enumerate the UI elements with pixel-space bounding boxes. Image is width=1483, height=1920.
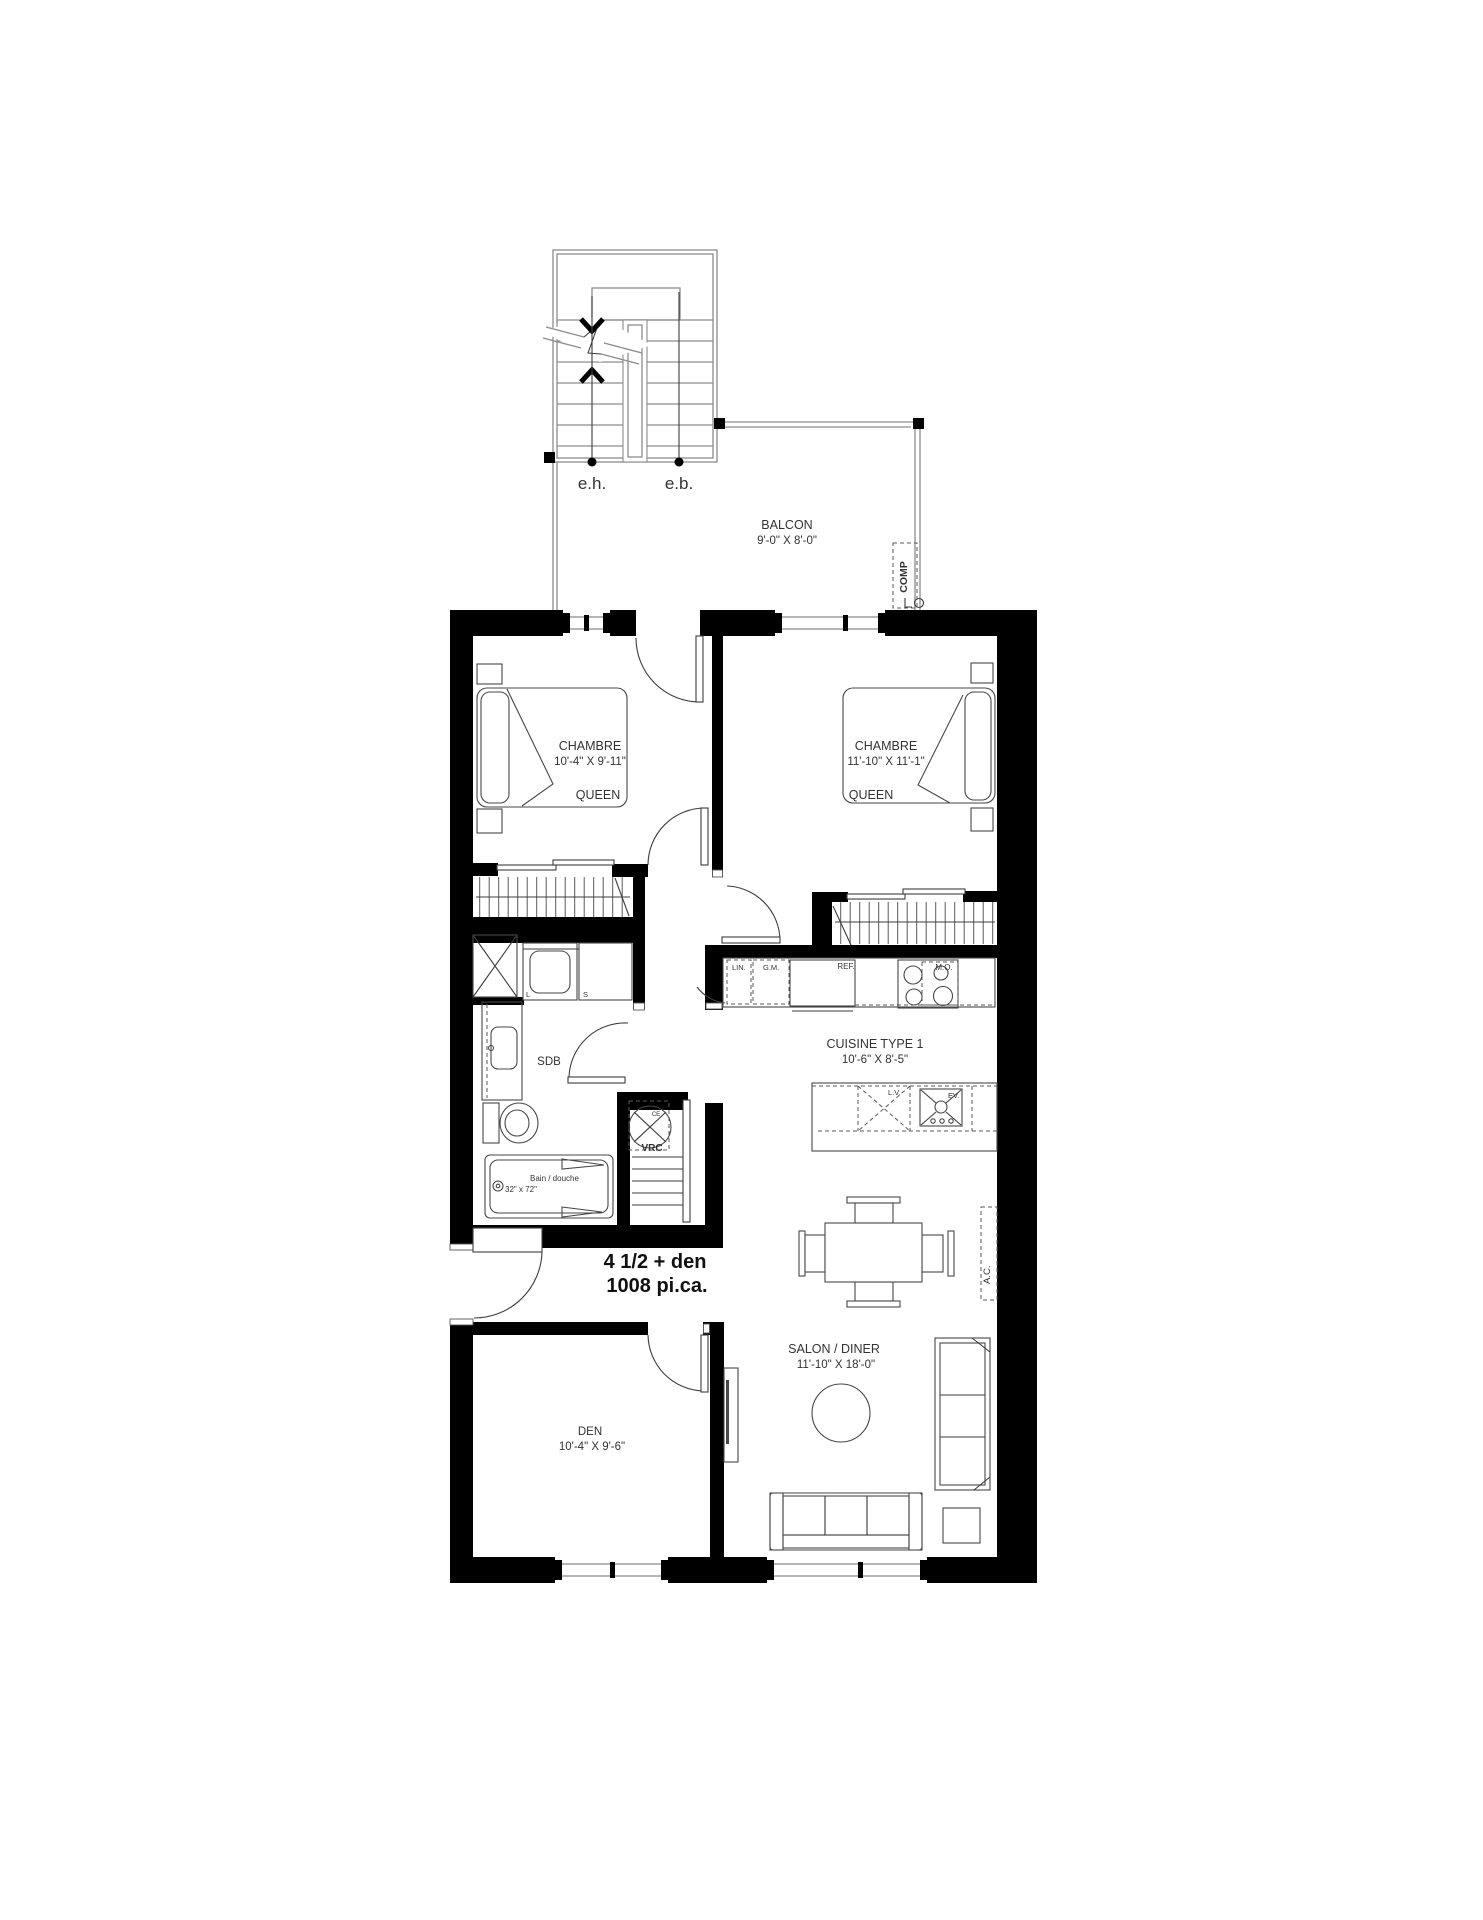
linen-label: LIN. — [732, 963, 746, 972]
chair-back — [847, 1197, 900, 1203]
ac-label: A.C. — [982, 1266, 993, 1284]
vrc-label: VRC — [641, 1143, 662, 1154]
bathroom-door — [568, 1023, 628, 1083]
den-window — [555, 1557, 668, 1583]
den: DEN 10'-4" X 9'-6" — [559, 1426, 625, 1453]
sink-label: EV. — [948, 1091, 959, 1100]
dining-set — [799, 1197, 954, 1307]
round-rug — [812, 1384, 870, 1442]
bedroom1-window — [563, 610, 610, 636]
chair-back — [847, 1301, 900, 1307]
stairs-up-label: e.h. — [578, 474, 606, 493]
bathroom-label: SDB — [537, 1056, 561, 1068]
vrc-shelves — [632, 1157, 683, 1205]
kitchen-north-wall — [713, 945, 997, 958]
vrc-closet: CE VRC — [629, 1101, 683, 1205]
dishwasher-label: L.V. — [888, 1088, 901, 1097]
vanity-sink — [482, 1002, 522, 1100]
downspout-icon — [915, 599, 924, 608]
chair-back — [799, 1231, 805, 1276]
closet-slider — [497, 865, 556, 870]
utility-chase — [473, 935, 517, 997]
microwave-label: M.O. — [935, 963, 952, 972]
fridge-label: REF. — [837, 962, 854, 971]
floor-plan-drawing: e.h. e.b. BALCON 9'-0" X 8'-0" COMP — [0, 0, 1483, 1920]
bedroom2: CHAMBRE 11'-10" X 11'-1" QUEEN — [833, 663, 995, 945]
nightstand — [477, 809, 502, 833]
wall-between-bedrooms — [712, 636, 723, 877]
living-dims: 11'-10" X 18'-0" — [797, 1359, 875, 1371]
hall-west-wall — [633, 865, 645, 1010]
stair-down-marker-dot — [675, 458, 684, 467]
unit-entry-door — [473, 1228, 542, 1318]
balcony-label: BALCON — [761, 518, 812, 532]
island-sink: EV. — [920, 1089, 962, 1126]
bedroom1-label: CHAMBRE — [559, 739, 622, 753]
chair — [855, 1282, 893, 1301]
closet-slider — [847, 894, 905, 899]
chair — [855, 1203, 893, 1223]
bedroom2-label: CHAMBRE — [855, 739, 918, 753]
balcony-entry-door — [636, 636, 703, 702]
sofa — [770, 1493, 922, 1550]
kitchen-dims: 10'-6" X 8'-5" — [842, 1054, 908, 1066]
den-dims: 10'-4" X 9'-6" — [559, 1441, 625, 1453]
unit-area: 1008 pi.ca. — [606, 1275, 707, 1297]
den-living-wall — [710, 1330, 724, 1557]
bedroom1-bed-label: QUEEN — [576, 788, 620, 802]
balcony-door-opening — [636, 610, 700, 636]
kitchen-island: L.V. EV. — [812, 1083, 997, 1151]
chair — [922, 1235, 943, 1272]
balcony-post — [913, 418, 924, 429]
bedroom2-dims: 11'-10" X 11'-1" — [847, 756, 924, 768]
tub-label-2: 32" x 72" — [505, 1185, 537, 1194]
kitchen: LIN. G.M. REF. M.O. L.V. — [723, 958, 997, 1151]
pantry-label: G.M. — [763, 963, 779, 972]
kitchen-label: CUISINE TYPE 1 — [826, 1037, 923, 1051]
closet-slider — [553, 860, 614, 865]
toilet — [483, 1103, 538, 1143]
dryer: S — [579, 943, 632, 1000]
balcony: BALCON 9'-0" X 8'-0" COMP — [544, 418, 924, 610]
balcony-post — [714, 418, 725, 429]
washer-label: L — [526, 990, 530, 999]
living-dining: A.C. SALON / DINER 11'-10" X 18'-0" — [724, 1197, 997, 1550]
den-door — [648, 1335, 708, 1392]
balcony-post — [544, 452, 555, 463]
exterior-staircase: e.h. e.b. — [542, 250, 717, 493]
nightstand — [477, 664, 502, 684]
closet-slider — [903, 889, 965, 894]
unit-title: 4 1/2 + den 1008 pi.ca. — [604, 1251, 708, 1297]
side-table — [943, 1508, 980, 1543]
tub-label-1: Bain / douche — [530, 1174, 579, 1183]
bedroom2-door — [722, 886, 780, 943]
stairs-down-label: e.b. — [665, 474, 693, 493]
bedroom2-bed-label: QUEEN — [849, 788, 893, 802]
tv-console — [724, 1368, 738, 1462]
vrc-tag: CE — [652, 1112, 660, 1118]
nightstand — [971, 663, 993, 683]
comp-label: COMP — [898, 561, 910, 593]
bedroom1-door — [648, 808, 708, 865]
shelf-unit — [935, 1338, 990, 1490]
chair — [805, 1235, 825, 1272]
balcony-dims: 9'-0" X 8'-0" — [757, 535, 817, 547]
dryer-label: S — [583, 990, 588, 999]
bathtub: Bain / douche 32" x 72" — [485, 1155, 613, 1218]
bedroom1: CHAMBRE 10'-4" X 9'-11" QUEEN — [475, 664, 630, 917]
bedroom1-dims: 10'-4" X 9'-11" — [554, 756, 626, 768]
chair-back — [948, 1231, 954, 1276]
unit-type: 4 1/2 + den — [604, 1251, 707, 1273]
den-label: DEN — [578, 1426, 602, 1438]
dishwasher: L.V. — [858, 1086, 910, 1131]
floor-plan-page: e.h. e.b. BALCON 9'-0" X 8'-0" COMP — [0, 0, 1483, 1920]
living-window — [767, 1557, 927, 1583]
bedroom2-window — [775, 610, 885, 636]
living-label: SALON / DINER — [788, 1342, 880, 1356]
bedroom1-closet — [475, 860, 630, 917]
vrc-door-leaf — [683, 1100, 690, 1222]
dining-table — [825, 1223, 922, 1282]
stair-up-marker-dot — [588, 458, 597, 467]
nightstand — [971, 808, 993, 831]
ac-unit — [981, 1207, 997, 1300]
